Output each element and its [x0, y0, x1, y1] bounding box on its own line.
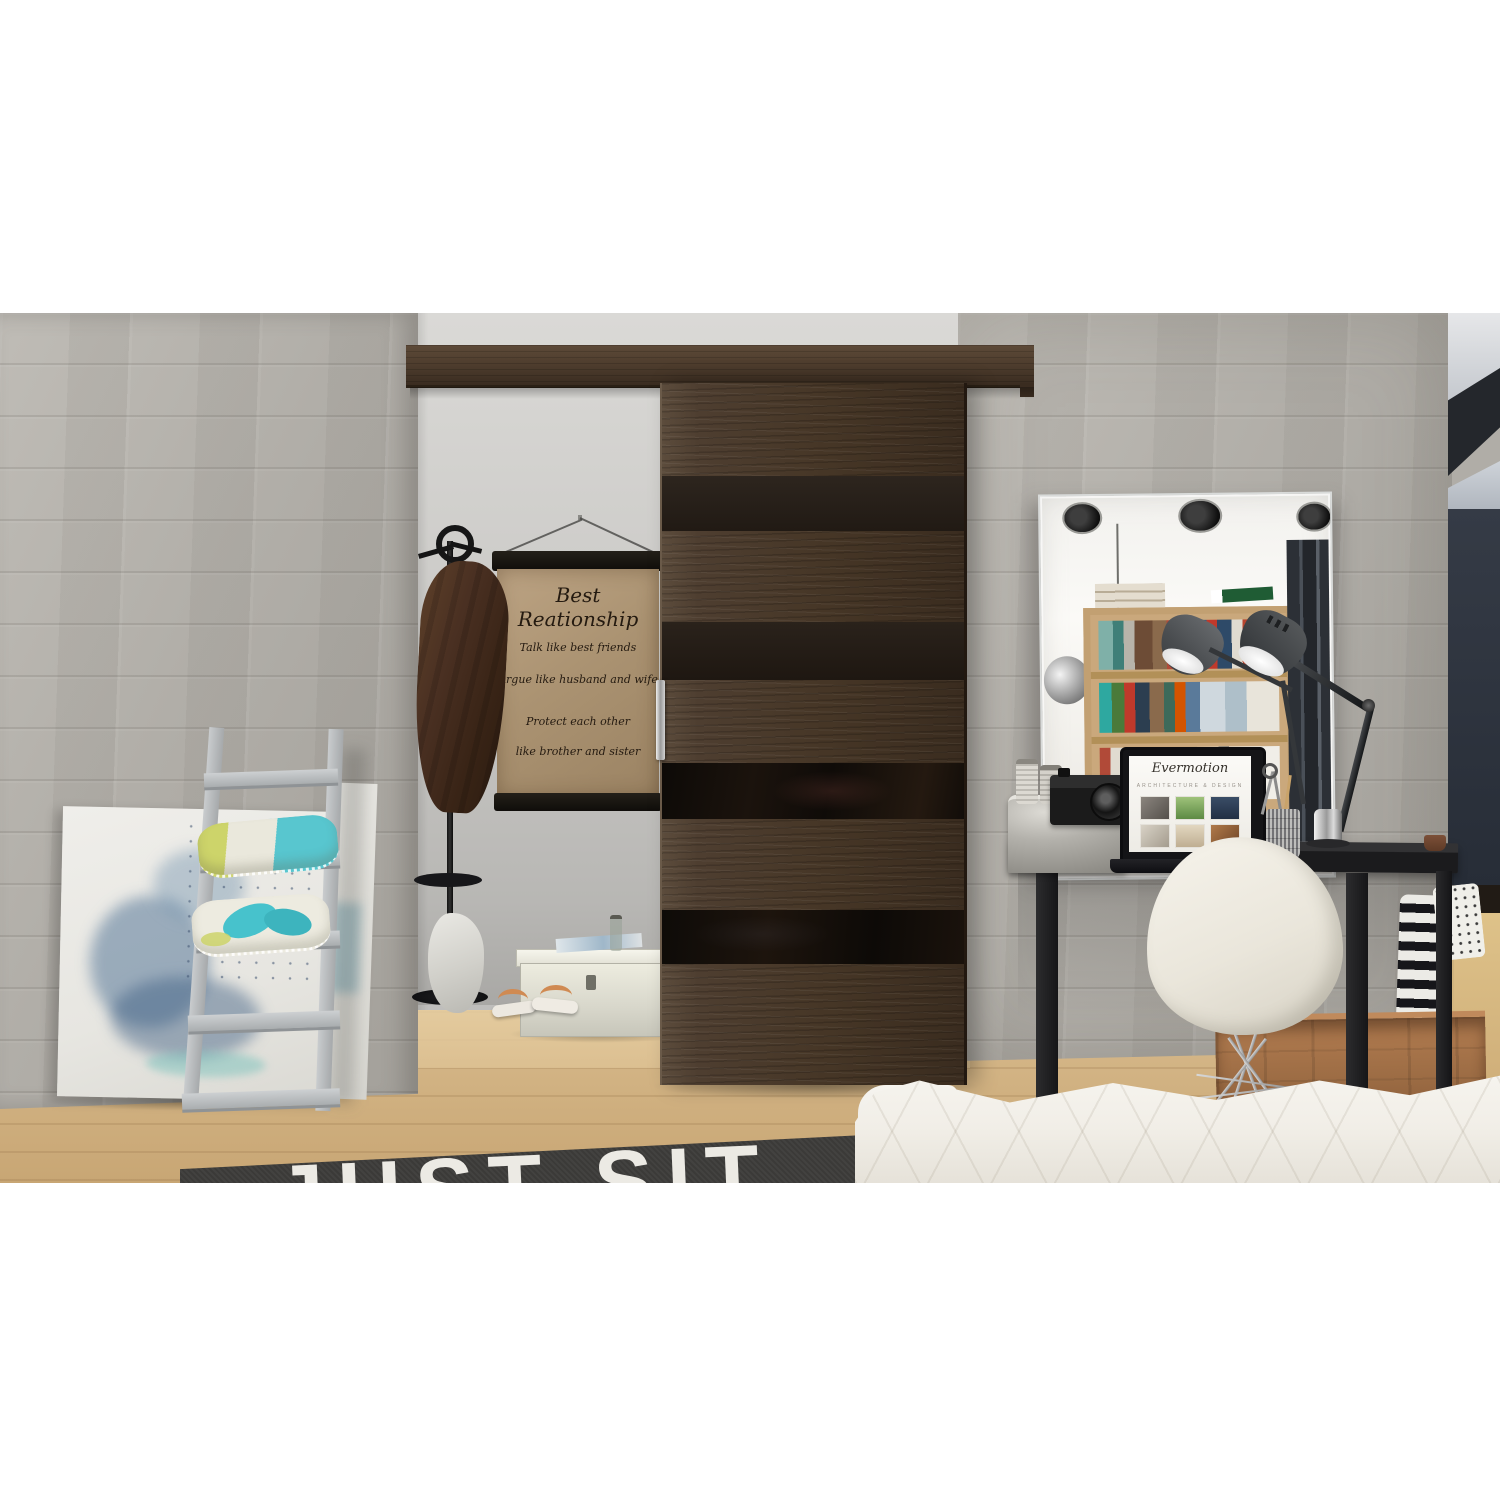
- site-subtitle: ARCHITECTURE & DESIGN: [1129, 783, 1251, 789]
- door-handle: [656, 680, 665, 760]
- window-frame-reflection: [1286, 540, 1331, 842]
- lamp-vent: [1266, 615, 1293, 634]
- door-glass-stripe-2: [662, 622, 964, 680]
- books-row-2: [1099, 681, 1280, 733]
- paint-streak: [145, 1050, 266, 1079]
- plastic-bag: [428, 913, 484, 1013]
- thumbnail-row-1: [1129, 796, 1251, 820]
- glass-reflection: [772, 771, 892, 811]
- coat-stand-tray: [414, 873, 482, 887]
- glass-bottle: [610, 915, 622, 951]
- photo-thumbnail: [1140, 824, 1170, 848]
- door-glass-stripe-1: [662, 476, 964, 531]
- desk-leg-back: [1436, 871, 1452, 1113]
- photo-thumbnail: [1175, 796, 1205, 820]
- sandal-left-strap: [498, 989, 528, 1010]
- site-logo: Evermotion: [1129, 761, 1251, 776]
- spotlight-reflection-3: [1296, 501, 1332, 531]
- lamp-base: [1314, 809, 1342, 843]
- book-stack-reflection: [1095, 583, 1165, 608]
- poster-line-3: Protect each other: [497, 715, 659, 728]
- door-glass-stripe-3: [662, 763, 964, 819]
- pillow-leaf: [190, 892, 332, 958]
- poster-line-2: Argue like husband and wife: [497, 673, 659, 686]
- poster-line-1: Talk like best friends: [497, 641, 659, 654]
- spotlight-reflection-2: [1178, 499, 1222, 533]
- green-book-reflection: [1211, 586, 1274, 603]
- poster-line-4: like brother and sister: [497, 745, 659, 758]
- sliding-door: [660, 383, 967, 1085]
- chest-latch: [586, 975, 596, 990]
- thread-spool: [1016, 759, 1038, 804]
- door-glass-stripe-4: [662, 910, 964, 964]
- leaf-print: [262, 905, 314, 939]
- desk-leg-left: [1036, 869, 1058, 1107]
- poster-frame-top: [492, 551, 664, 571]
- door-rail: [406, 345, 1034, 388]
- lamp-foot: [1306, 839, 1350, 848]
- photo-thumbnail: [1140, 796, 1170, 820]
- glass-reflection: [692, 916, 832, 952]
- spotlight-reflection-1: [1062, 502, 1102, 534]
- lamp-joint: [1362, 699, 1375, 712]
- shelf-board: [1092, 735, 1288, 744]
- leaf-print-accent: [200, 931, 231, 947]
- poster-title: Best Reationship: [497, 583, 659, 631]
- small-cup: [1424, 835, 1446, 851]
- poster-paper: Best Reationship Talk like best friends …: [497, 569, 659, 797]
- poster-frame-bottom: [494, 793, 662, 811]
- room-photo: Best Reationship Talk like best friends …: [0, 313, 1500, 1183]
- camera-dial: [1058, 768, 1070, 777]
- scissors-handle: [1262, 763, 1278, 779]
- photo-thumbnail: [1210, 796, 1240, 820]
- photo-thumbnail: [1175, 824, 1205, 848]
- sandal-right-strap: [540, 985, 572, 1006]
